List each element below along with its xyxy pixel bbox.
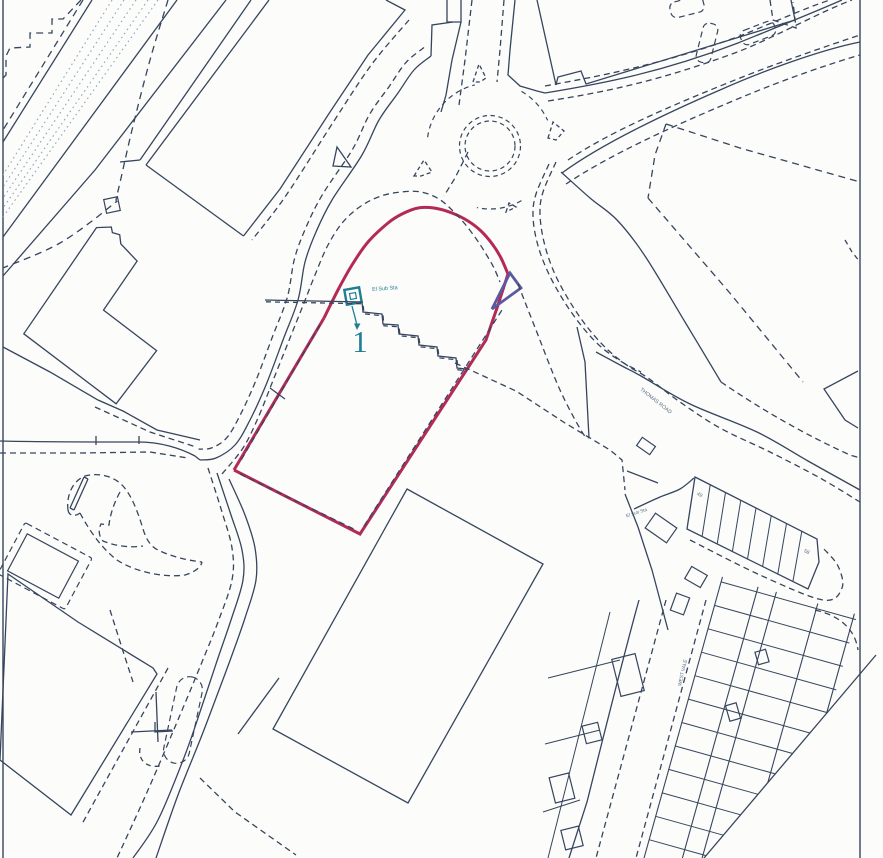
svg-text:1: 1 bbox=[352, 324, 368, 359]
